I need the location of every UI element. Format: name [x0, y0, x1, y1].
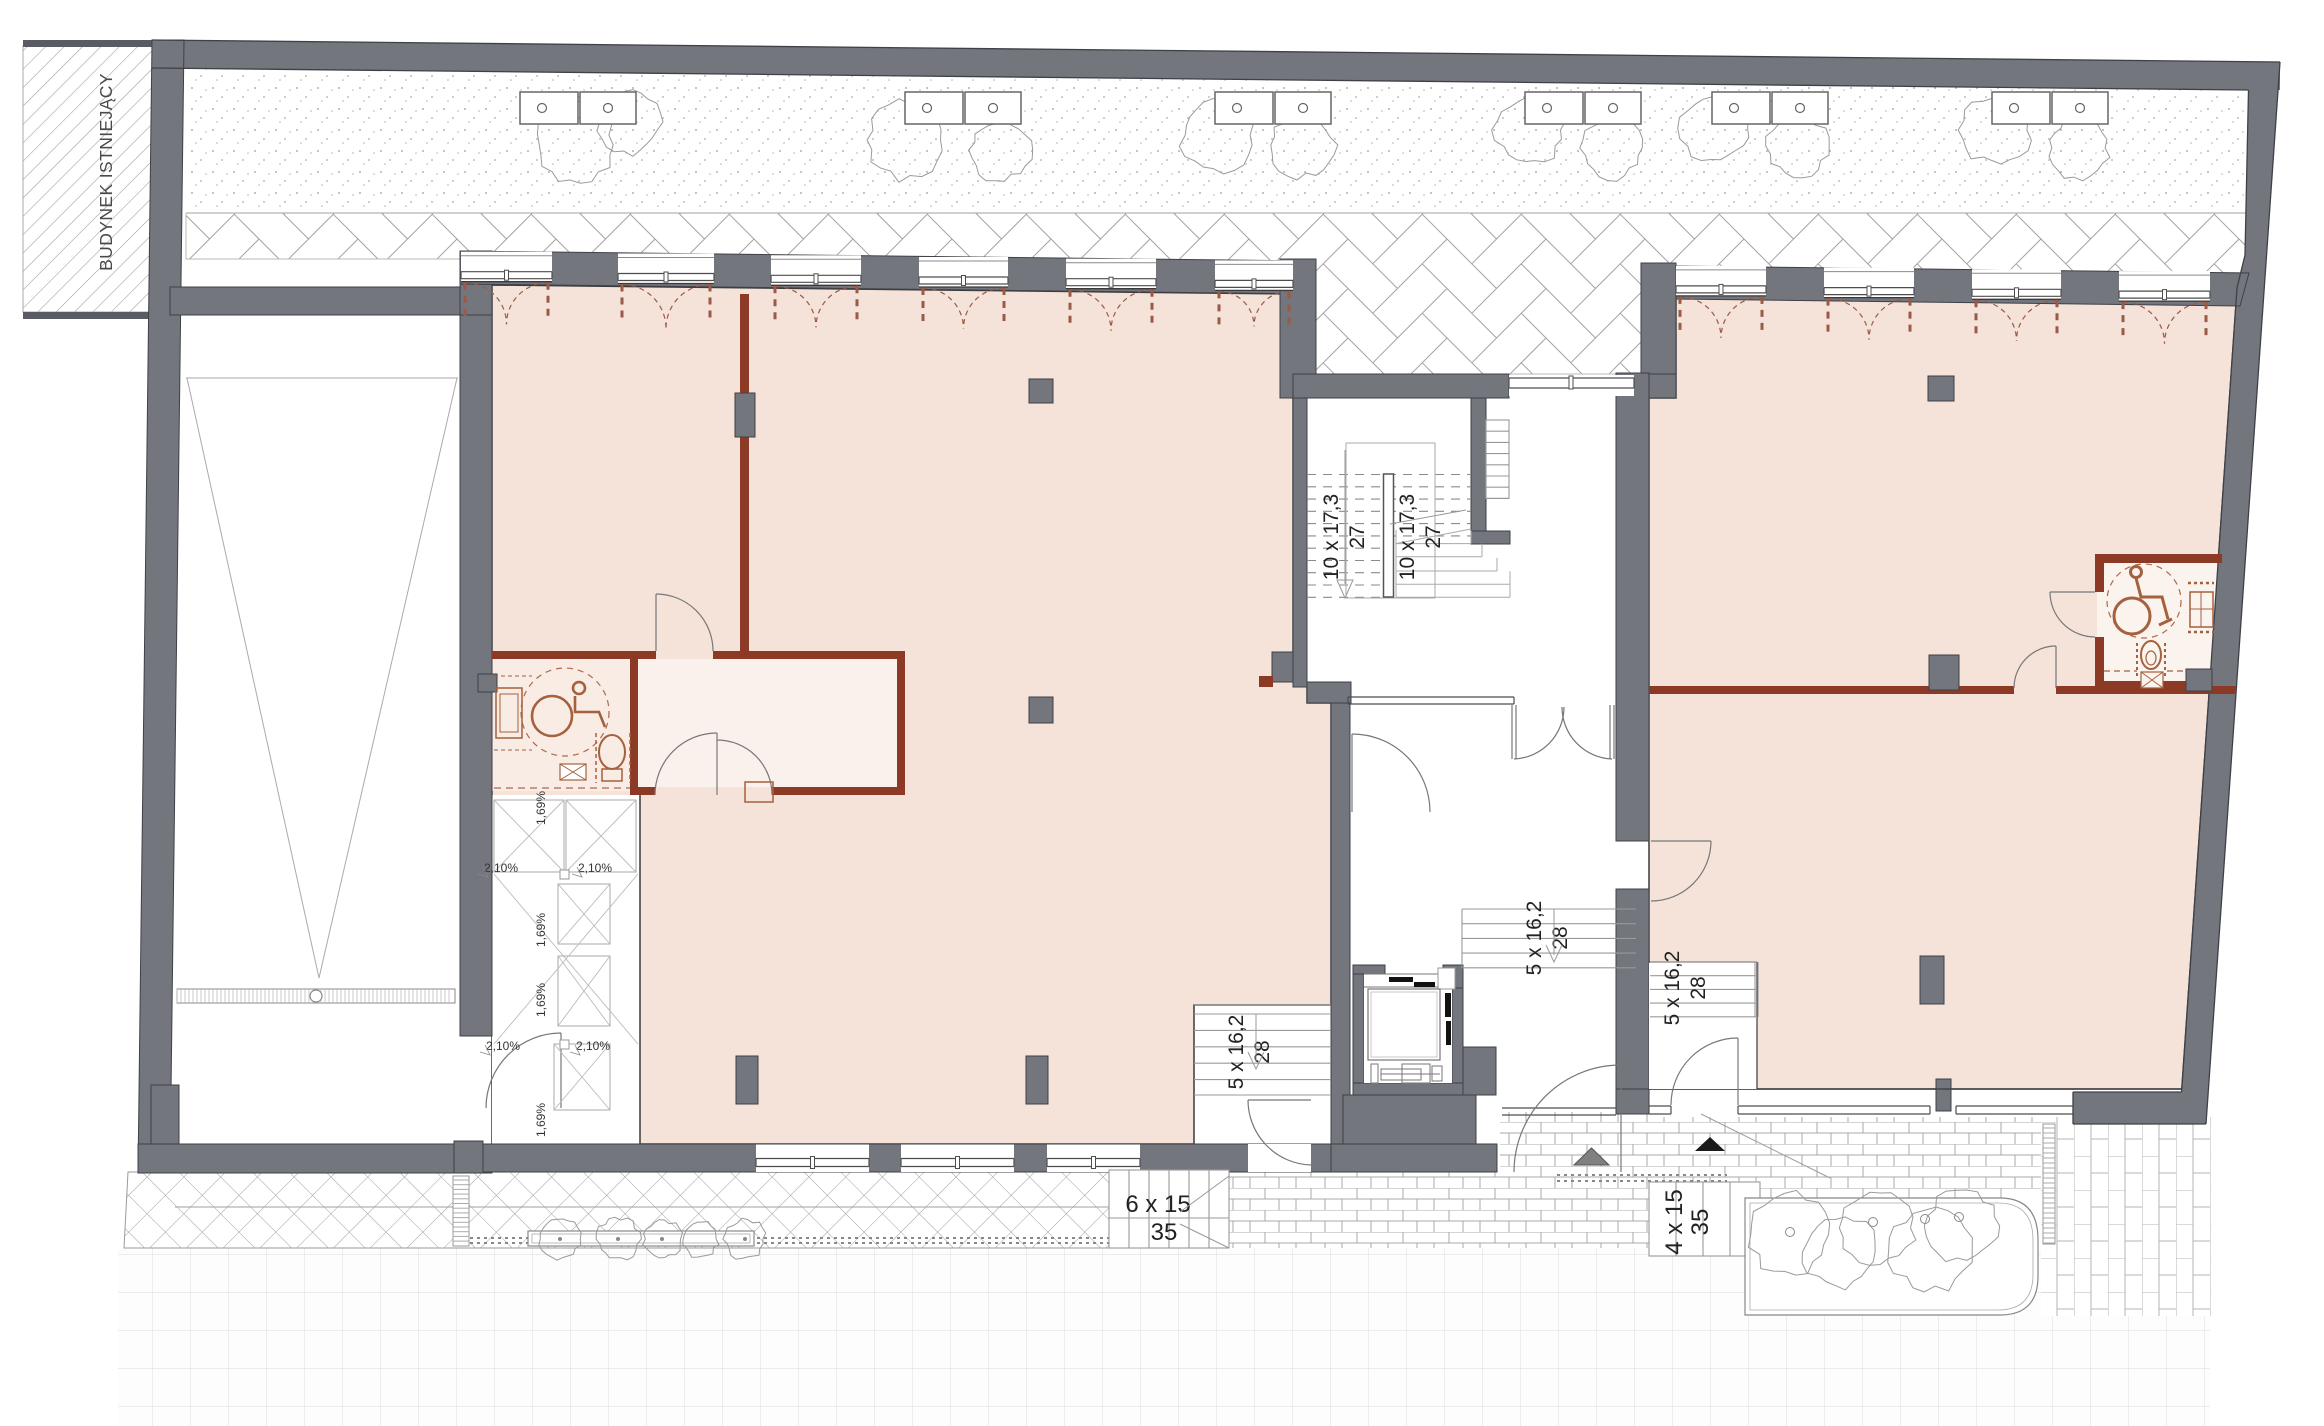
svg-text:2,10%: 2,10%: [484, 861, 518, 875]
svg-text:2,10%: 2,10%: [486, 1039, 520, 1053]
svg-text:1,69%: 1,69%: [534, 983, 548, 1017]
svg-text:6 x 15: 6 x 15: [1125, 1191, 1190, 1218]
svg-text:27: 27: [1346, 525, 1369, 548]
svg-text:28: 28: [1251, 1040, 1274, 1063]
svg-text:5 x 16,2: 5 x 16,2: [1661, 951, 1684, 1026]
svg-text:5 x 16,2: 5 x 16,2: [1225, 1015, 1248, 1090]
svg-text:1,69%: 1,69%: [534, 1103, 548, 1137]
svg-text:28: 28: [1549, 926, 1572, 949]
svg-text:2,10%: 2,10%: [578, 861, 612, 875]
svg-text:10 x 17,3: 10 x 17,3: [1320, 494, 1343, 580]
svg-text:BUDYNEK ISTNIEJĄCY: BUDYNEK ISTNIEJĄCY: [96, 73, 116, 271]
svg-text:4 x 15: 4 x 15: [1661, 1189, 1688, 1254]
svg-text:35: 35: [1151, 1219, 1178, 1246]
svg-text:2,10%: 2,10%: [576, 1039, 610, 1053]
svg-text:35: 35: [1687, 1209, 1714, 1236]
svg-text:1,69%: 1,69%: [534, 791, 548, 825]
svg-text:10 x 17,3: 10 x 17,3: [1396, 494, 1419, 580]
svg-text:5 x 16,2: 5 x 16,2: [1523, 901, 1546, 976]
svg-text:27: 27: [1422, 525, 1445, 548]
svg-text:28: 28: [1687, 976, 1710, 999]
svg-text:1,69%: 1,69%: [534, 913, 548, 947]
